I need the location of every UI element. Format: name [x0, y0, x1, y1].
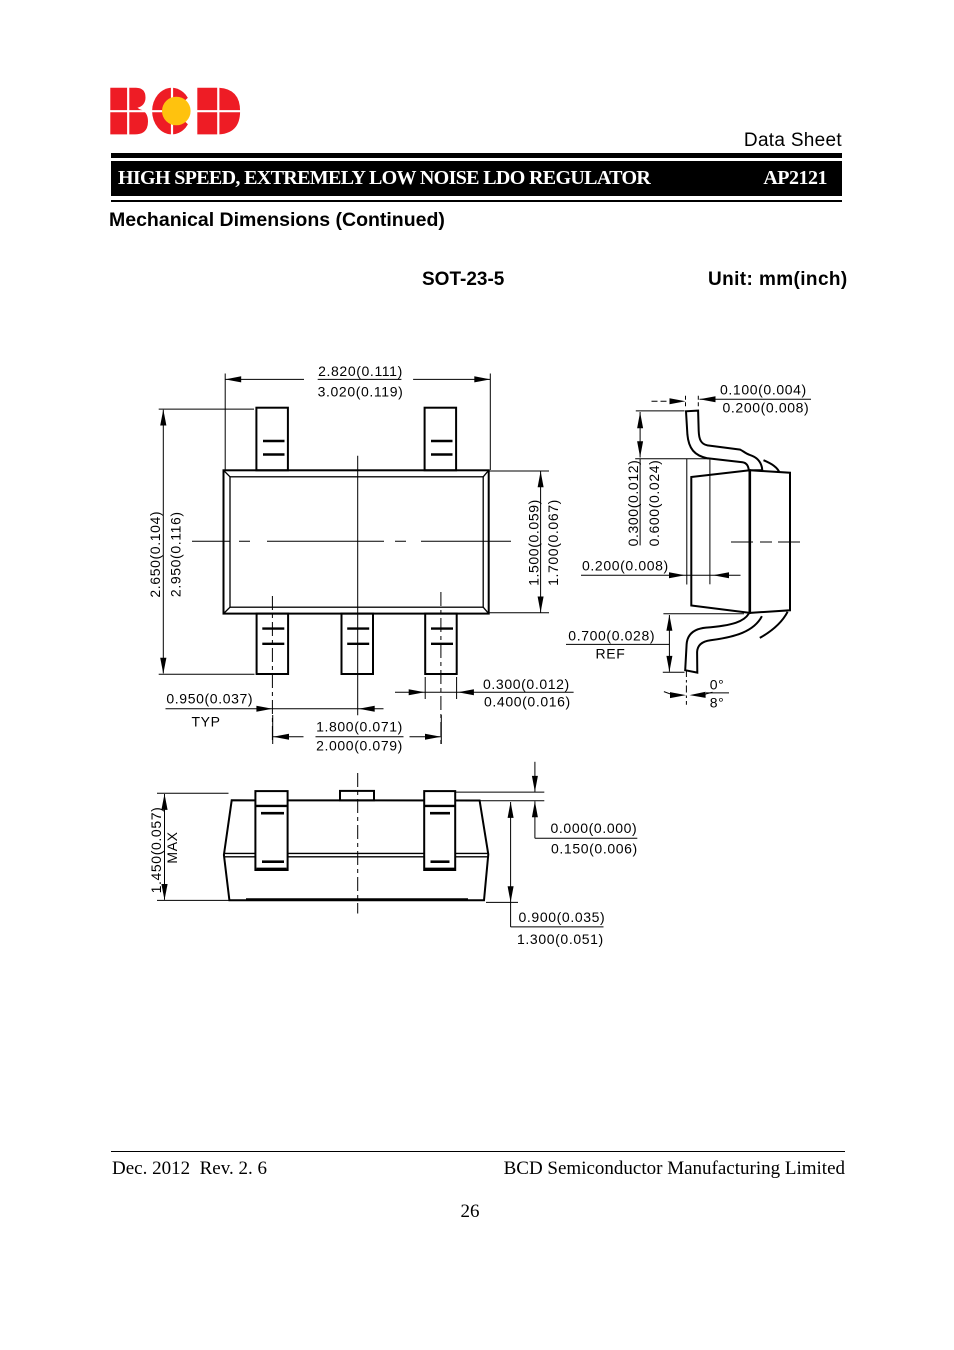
- svg-text:0.700(0.028): 0.700(0.028): [568, 627, 655, 643]
- svg-text:2.650(0.104): 2.650(0.104): [147, 511, 163, 598]
- svg-text:0.950(0.037): 0.950(0.037): [166, 691, 253, 707]
- svg-text:0.900(0.035): 0.900(0.035): [519, 909, 606, 925]
- svg-text:1.450(0.057): 1.450(0.057): [148, 807, 164, 894]
- svg-text:0.100(0.004): 0.100(0.004): [720, 381, 807, 397]
- svg-text:0.300(0.012): 0.300(0.012): [483, 676, 570, 692]
- svg-text:TYP: TYP: [191, 714, 220, 730]
- svg-text:0°: 0°: [710, 676, 725, 692]
- svg-text:0.150(0.006): 0.150(0.006): [551, 841, 638, 857]
- svg-text:2.950(0.116): 2.950(0.116): [168, 511, 184, 597]
- svg-text:1.300(0.051): 1.300(0.051): [517, 931, 604, 947]
- svg-text:REF: REF: [596, 645, 626, 661]
- svg-text:0.200(0.008): 0.200(0.008): [723, 399, 810, 415]
- svg-text:1.800(0.071): 1.800(0.071): [316, 718, 403, 734]
- svg-text:0.400(0.016): 0.400(0.016): [484, 693, 571, 709]
- svg-text:0.200(0.008): 0.200(0.008): [582, 557, 669, 573]
- svg-text:8°: 8°: [710, 695, 725, 711]
- svg-text:MAX: MAX: [164, 831, 180, 863]
- svg-text:1.700(0.067): 1.700(0.067): [545, 499, 561, 586]
- svg-text:1.500(0.059): 1.500(0.059): [526, 499, 542, 586]
- svg-text:0.300(0.012): 0.300(0.012): [625, 460, 641, 547]
- svg-text:3.020(0.119): 3.020(0.119): [318, 384, 404, 400]
- svg-text:0.600(0.024): 0.600(0.024): [646, 460, 662, 547]
- svg-text:2.000(0.079): 2.000(0.079): [316, 738, 403, 754]
- svg-text:2.820(0.111): 2.820(0.111): [318, 363, 403, 379]
- svg-text:0.000(0.000): 0.000(0.000): [551, 820, 638, 836]
